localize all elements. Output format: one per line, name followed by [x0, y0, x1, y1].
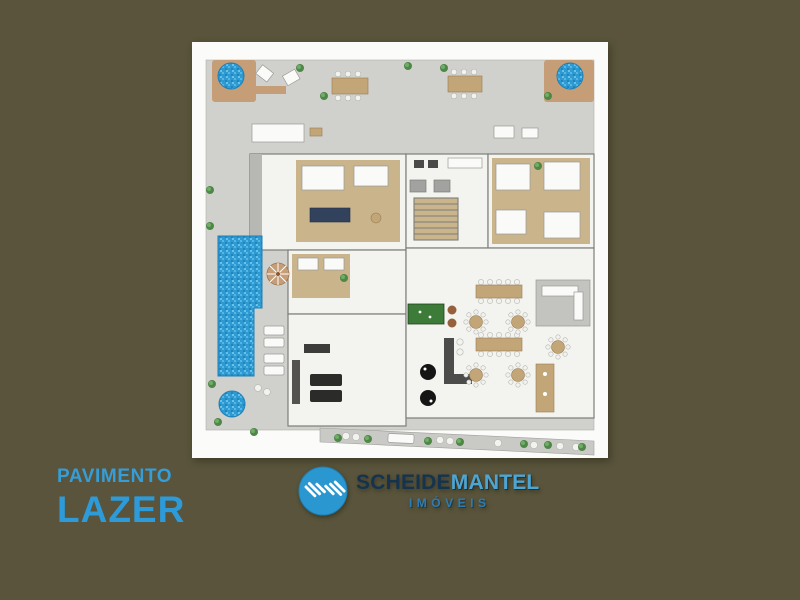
party-kitchen-counter — [536, 364, 554, 412]
sauna-bench — [298, 258, 318, 270]
terrace-seat — [494, 126, 514, 138]
treadmill — [310, 374, 342, 386]
elevator — [434, 180, 450, 192]
sun-lounger — [264, 338, 284, 347]
sofa — [542, 286, 578, 296]
terrace-sofa — [252, 124, 304, 142]
caption: PAVIMENTO LAZER — [57, 467, 185, 528]
sun-lounger — [264, 366, 284, 375]
bistro-table — [420, 364, 436, 380]
kids-pool — [219, 391, 245, 417]
side-table — [371, 213, 381, 223]
bed — [544, 212, 580, 238]
tv-sofa — [310, 208, 350, 222]
sun-lounger — [264, 326, 284, 335]
caption-lazer: LAZER — [57, 491, 185, 528]
bed — [544, 162, 580, 190]
gym-room — [288, 314, 406, 426]
bed — [496, 210, 526, 234]
bench — [388, 433, 414, 443]
bed — [302, 166, 344, 190]
brand-name-part2: MANTEL — [451, 471, 540, 494]
bed — [496, 164, 530, 190]
kitchen-counter — [448, 158, 482, 168]
brand-logo: SCHEIDEMANTEL IMÓVEIS — [298, 466, 539, 516]
coffee-table — [310, 128, 322, 136]
brand-name-part1: SCHEIDE — [356, 471, 451, 494]
weight-rack — [292, 360, 300, 404]
sofa — [574, 292, 583, 320]
scheidemantel-logo-icon — [298, 466, 348, 516]
page-background: PAVIMENTO LAZER SCHEIDEMANTEL IMÓVEIS — [0, 0, 800, 600]
brand-subtitle: IMÓVEIS — [405, 496, 491, 510]
long-table — [476, 332, 522, 356]
umbrella-table — [267, 263, 289, 285]
treadmill — [310, 390, 342, 402]
pool-table — [408, 304, 444, 324]
floorplan-rendering — [192, 42, 608, 458]
bistro-table — [420, 390, 436, 406]
terrace-seat — [522, 128, 538, 138]
elevator — [410, 180, 426, 192]
sauna-bench — [324, 258, 344, 270]
caption-pavimento: PAVIMENTO — [57, 467, 185, 486]
sun-lounger — [264, 354, 284, 363]
floorplan-card — [192, 42, 608, 458]
long-table — [476, 279, 522, 303]
sofa — [354, 166, 388, 186]
brand-name: SCHEIDEMANTEL — [356, 472, 539, 493]
armchair — [448, 319, 457, 328]
armchair — [448, 306, 457, 315]
weight-bench — [304, 344, 330, 353]
bar-counter — [444, 338, 454, 380]
kitchen-appliance — [428, 160, 438, 168]
kitchen-appliance — [414, 160, 424, 168]
